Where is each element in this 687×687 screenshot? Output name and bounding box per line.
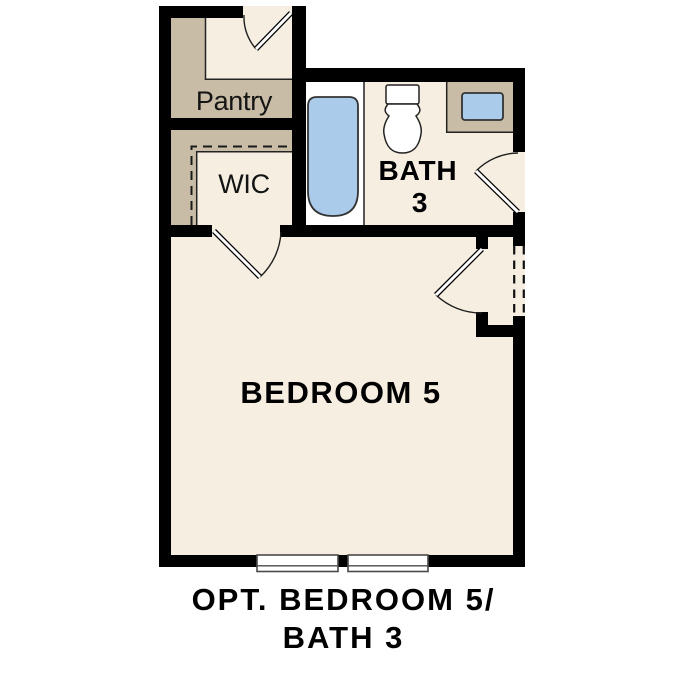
wall-window-mullion [338,555,348,567]
plan-caption: OPT. BEDROOM 5/ BATH 3 [0,581,687,657]
floorplan-page: Pantry WIC BATH 3 BEDROOM 5 OPT. BEDROOM… [0,0,687,687]
wall-bottom-right [428,555,525,567]
bedroom-label: BEDROOM 5 [240,375,441,410]
toilet-bowl [384,104,422,153]
bathtub [308,97,358,216]
wall-bath-right-upper [513,68,525,152]
window-right [348,555,428,572]
vanity-sink [462,93,503,120]
wall-pantry-wic-divider [159,118,306,130]
pantry-label: Pantry [196,86,273,116]
toilet [384,85,422,153]
wall-bottom-left [159,555,257,567]
window-left [257,555,338,572]
wall-bath-top [292,68,525,82]
wall-right-lower [513,316,525,567]
wall-bedroom-top-left [159,225,212,237]
wall-bedroom-door-stub-top [476,237,488,249]
bath-label-line2: 3 [412,187,428,218]
wic-label: WIC [218,169,270,199]
wall-top-pantry [159,6,243,18]
caption-line-1: OPT. BEDROOM 5/ [0,581,687,619]
bath-label-line1: BATH [379,155,458,186]
wall-left [159,6,171,567]
wall-bedroom-top-right [280,225,525,237]
optional-opening [513,246,525,316]
toilet-tank [386,85,419,104]
caption-line-2: BATH 3 [0,619,687,657]
